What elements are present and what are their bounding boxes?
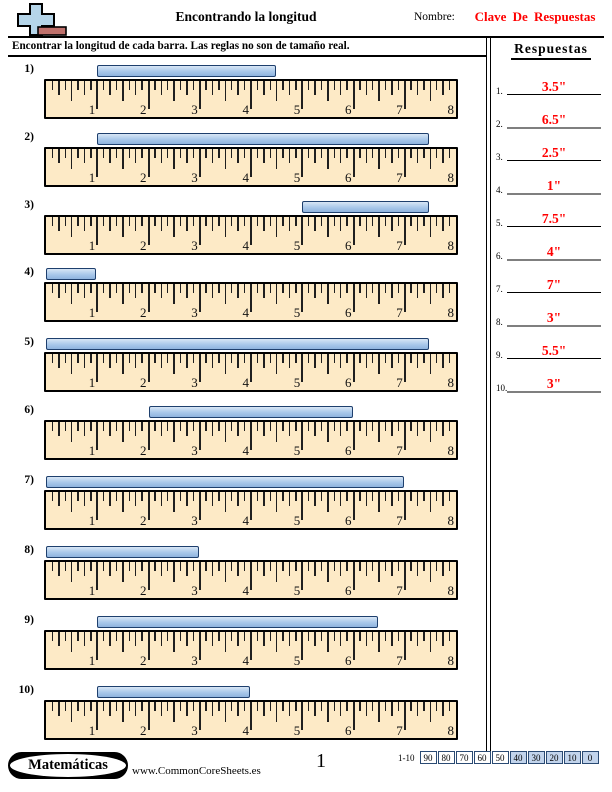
ruler-inch-number: 8	[439, 103, 454, 116]
answer-item: 10. 3"	[492, 375, 610, 390]
ruler-tick	[308, 149, 309, 158]
ruler-tick	[205, 81, 206, 90]
ruler-tick	[372, 217, 373, 226]
ruler-tick	[449, 284, 450, 293]
ruler-tick	[372, 149, 373, 158]
ruler-tick	[334, 562, 335, 571]
ruler-tick	[436, 354, 437, 363]
ruler-inch-number: 1	[80, 239, 95, 252]
ruler-inch-number: 2	[132, 444, 147, 457]
ruler-tick	[430, 354, 431, 374]
answer-number: 10.	[496, 383, 507, 393]
ruler-tick	[301, 632, 303, 660]
ruler-tick	[366, 217, 367, 231]
ruler-tick	[141, 149, 142, 158]
ruler-tick	[346, 422, 347, 431]
ruler-tick	[186, 702, 187, 716]
ruler-tick	[340, 492, 341, 506]
ruler-inch-number: 5	[285, 171, 300, 184]
ruler-tick	[180, 632, 181, 641]
measured-bar	[97, 133, 429, 145]
ruler-tick	[161, 217, 162, 231]
ruler-tick	[65, 562, 66, 571]
ruler-tick	[346, 492, 347, 501]
ruler-tick	[436, 284, 437, 293]
ruler-tick	[366, 81, 367, 95]
ruler-tick	[417, 217, 418, 231]
answer-blank-line: 7.5"	[507, 210, 601, 227]
answer-item: 3. 2.5"	[492, 144, 610, 159]
ruler-tick	[257, 492, 258, 501]
ruler-tick	[430, 702, 431, 722]
answer-item: 5. 7.5"	[492, 210, 610, 225]
ruler-tick	[84, 354, 85, 368]
ruler: 12345678	[44, 700, 458, 740]
ruler-tick	[270, 492, 271, 501]
ruler-tick	[282, 702, 283, 711]
ruler-tick	[359, 492, 360, 501]
ruler-tick	[237, 562, 238, 576]
ruler-tick	[327, 81, 328, 101]
ruler-tick	[205, 492, 206, 501]
ruler-tick	[321, 81, 322, 90]
ruler-tick	[141, 81, 142, 90]
ruler-inch-number: 4	[234, 724, 249, 737]
ruler-tick	[58, 217, 59, 231]
ruler-tick	[244, 149, 245, 158]
ruler-tick	[346, 217, 347, 226]
ruler-tick	[193, 149, 194, 158]
ruler-inch-number: 4	[234, 239, 249, 252]
answers-title: Respuestas	[492, 40, 610, 60]
ruler-tick	[295, 149, 296, 158]
ruler-tick	[116, 354, 117, 363]
ruler-tick	[404, 81, 406, 109]
ruler-tick	[135, 354, 136, 368]
ruler-tick	[385, 217, 386, 226]
ruler-inch-number: 1	[80, 444, 95, 457]
ruler-inch-number: 6	[337, 654, 352, 667]
ruler-tick	[372, 562, 373, 571]
answer-blank-line: 5.5"	[507, 342, 601, 359]
ruler-tick	[52, 422, 53, 431]
ruler: 12345678	[44, 282, 458, 322]
ruler-tick	[334, 149, 335, 158]
ruler-tick	[205, 702, 206, 711]
ruler-tick	[84, 149, 85, 163]
ruler-tick	[327, 284, 328, 304]
ruler-tick	[141, 284, 142, 293]
ruler-tick	[250, 632, 252, 660]
ruler-inch-number: 7	[388, 724, 403, 737]
ruler-tick	[135, 217, 136, 231]
ruler-tick	[193, 562, 194, 571]
ruler-tick	[346, 562, 347, 571]
ruler-tick	[430, 284, 431, 304]
ruler-tick	[321, 632, 322, 641]
ruler-tick	[423, 354, 424, 363]
answer-blank-line: 4"	[507, 243, 601, 261]
answer-number: 5.	[496, 218, 503, 228]
ruler-tick	[96, 422, 98, 450]
ruler-tick	[231, 217, 232, 226]
ruler-tick	[199, 632, 201, 660]
ruler-tick	[270, 149, 271, 158]
ruler-tick	[77, 632, 78, 641]
ruler-tick	[244, 217, 245, 226]
ruler-tick	[314, 702, 315, 716]
ruler-tick	[385, 702, 386, 711]
ruler-tick	[417, 492, 418, 506]
ruler-tick	[276, 354, 277, 374]
ruler-inch-number: 3	[183, 376, 198, 389]
ruler-tick	[116, 217, 117, 226]
ruler-tick	[58, 81, 59, 95]
ruler-tick	[423, 702, 424, 711]
ruler: 12345678	[44, 560, 458, 600]
ruler-tick	[148, 492, 150, 520]
ruler-tick	[301, 492, 303, 520]
answer-number: 3.	[496, 152, 503, 162]
ruler-tick	[353, 217, 355, 245]
ruler-tick	[52, 149, 53, 158]
ruler-tick	[442, 632, 443, 646]
ruler-tick	[237, 422, 238, 436]
ruler-tick	[225, 81, 226, 101]
ruler-tick	[276, 422, 277, 442]
ruler-tick	[366, 492, 367, 506]
ruler-tick	[353, 284, 355, 312]
ruler-tick	[154, 702, 155, 711]
measured-bar	[149, 406, 353, 418]
ruler-tick	[193, 492, 194, 501]
ruler-tick	[71, 492, 72, 512]
ruler-inch-number: 8	[439, 444, 454, 457]
ruler-tick	[244, 562, 245, 571]
ruler-tick	[346, 632, 347, 641]
ruler-tick	[250, 149, 252, 177]
answer-number: 4.	[496, 185, 503, 195]
ruler-tick	[270, 422, 271, 431]
ruler-tick	[103, 632, 104, 641]
ruler-tick	[449, 354, 450, 363]
ruler-tick	[372, 702, 373, 711]
ruler-tick	[398, 422, 399, 431]
ruler-tick	[417, 422, 418, 436]
measured-bar	[97, 616, 378, 628]
ruler-tick	[353, 492, 355, 520]
measured-bar	[46, 546, 199, 558]
ruler-tick	[77, 422, 78, 431]
ruler-inch-number: 2	[132, 724, 147, 737]
score-cells: 9080706050403020100	[420, 751, 600, 764]
ruler-tick	[423, 217, 424, 226]
ruler-tick	[103, 284, 104, 293]
ruler-tick	[193, 284, 194, 293]
answer-blank-line: 3"	[507, 309, 601, 327]
ruler-tick	[90, 284, 91, 293]
answer-item: 8. 3"	[492, 309, 610, 324]
ruler-tick	[308, 217, 309, 226]
ruler-tick	[430, 422, 431, 442]
ruler-tick	[282, 562, 283, 571]
ruler-tick	[398, 492, 399, 501]
ruler-tick	[109, 354, 110, 368]
ruler-tick	[353, 562, 355, 590]
problem-number: 3)	[0, 199, 34, 211]
ruler-tick	[410, 562, 411, 571]
ruler-tick	[141, 632, 142, 641]
ruler-inch-number: 3	[183, 724, 198, 737]
ruler-tick	[423, 149, 424, 158]
ruler-tick	[430, 632, 431, 652]
ruler-tick	[372, 632, 373, 641]
ruler-tick	[180, 149, 181, 158]
answer-value: 6.5"	[542, 113, 566, 127]
ruler-tick	[135, 422, 136, 436]
ruler-tick	[282, 284, 283, 293]
answers-title-text: Respuestas	[511, 41, 591, 60]
ruler-tick	[129, 217, 130, 226]
ruler-tick	[327, 354, 328, 374]
ruler-tick	[218, 702, 219, 711]
ruler-tick	[161, 81, 162, 95]
ruler-tick	[442, 354, 443, 368]
ruler-tick	[378, 702, 379, 722]
answer-value: 5.5"	[542, 344, 566, 358]
ruler-tick	[410, 702, 411, 711]
ruler-tick	[385, 562, 386, 571]
ruler-tick	[314, 422, 315, 436]
ruler-tick	[289, 492, 290, 506]
answer-blank-line: 3"	[507, 375, 601, 393]
ruler-tick	[129, 81, 130, 90]
ruler-tick	[237, 81, 238, 95]
answer-value: 4"	[547, 245, 561, 259]
ruler-tick	[436, 217, 437, 226]
ruler-tick	[186, 492, 187, 506]
ruler-tick	[167, 702, 168, 711]
ruler-inch-number: 3	[183, 654, 198, 667]
ruler-tick	[116, 284, 117, 293]
ruler-inch-number: 4	[234, 514, 249, 527]
ruler-tick	[391, 354, 392, 368]
answer-blank-line: 6.5"	[507, 111, 601, 129]
ruler-tick	[205, 217, 206, 226]
ruler-tick	[218, 492, 219, 501]
ruler-tick	[186, 149, 187, 163]
answer-value: 7.5"	[542, 212, 566, 226]
ruler-tick	[186, 422, 187, 436]
ruler-tick	[199, 81, 201, 109]
ruler-tick	[404, 217, 406, 245]
ruler-inch-number: 5	[285, 654, 300, 667]
ruler-tick	[96, 492, 98, 520]
answer-item: 1. 3.5"	[492, 78, 610, 93]
ruler-tick	[58, 422, 59, 436]
ruler-tick	[129, 284, 130, 293]
ruler-tick	[225, 149, 226, 169]
ruler-tick	[109, 492, 110, 506]
ruler-tick	[257, 81, 258, 90]
ruler-tick	[225, 422, 226, 442]
ruler-tick	[103, 81, 104, 90]
ruler-tick	[385, 492, 386, 501]
ruler-tick	[417, 562, 418, 576]
ruler-tick	[398, 284, 399, 293]
ruler-tick	[135, 149, 136, 163]
ruler-tick	[148, 354, 150, 382]
score-cell: 50	[492, 751, 509, 764]
ruler-tick	[116, 422, 117, 431]
ruler-tick	[289, 354, 290, 368]
ruler-tick	[96, 284, 98, 312]
ruler-tick	[282, 422, 283, 431]
ruler-tick	[289, 422, 290, 436]
ruler-tick	[295, 562, 296, 571]
ruler-tick	[186, 81, 187, 95]
ruler-tick	[129, 149, 130, 158]
ruler-tick	[231, 284, 232, 293]
ruler-tick	[186, 562, 187, 576]
ruler-tick	[180, 284, 181, 293]
ruler-tick	[250, 217, 252, 245]
ruler-tick	[263, 217, 264, 231]
ruler-tick	[84, 562, 85, 576]
ruler-tick	[180, 354, 181, 363]
ruler-tick	[378, 149, 379, 169]
ruler-tick	[263, 354, 264, 368]
ruler-tick	[398, 632, 399, 641]
ruler-tick	[231, 422, 232, 431]
ruler-inch-number: 1	[80, 514, 95, 527]
ruler-tick	[244, 702, 245, 711]
ruler-tick	[334, 492, 335, 501]
ruler-tick	[173, 284, 174, 304]
ruler-tick	[301, 354, 303, 382]
ruler-tick	[250, 284, 252, 312]
answer-key-label: Clave De Respuestas	[462, 9, 608, 25]
ruler-tick	[225, 702, 226, 722]
ruler-tick	[321, 284, 322, 293]
ruler-tick	[250, 702, 252, 730]
ruler-tick	[167, 492, 168, 501]
ruler-tick	[77, 492, 78, 501]
ruler-tick	[161, 354, 162, 368]
ruler-tick	[103, 562, 104, 571]
measured-bar	[46, 268, 96, 280]
ruler-tick	[410, 422, 411, 431]
ruler-tick	[308, 702, 309, 711]
ruler-inch-number: 1	[80, 654, 95, 667]
ruler-tick	[199, 284, 201, 312]
ruler-tick	[359, 422, 360, 431]
measured-bar	[46, 476, 404, 488]
ruler-tick	[391, 492, 392, 506]
ruler-tick	[301, 217, 303, 245]
ruler-inch-number: 2	[132, 376, 147, 389]
ruler-tick	[430, 562, 431, 582]
ruler-inch-number: 8	[439, 239, 454, 252]
ruler-inch-number: 3	[183, 444, 198, 457]
ruler-tick	[327, 492, 328, 512]
ruler-tick	[436, 632, 437, 641]
ruler-tick	[173, 632, 174, 652]
ruler-tick	[250, 422, 252, 450]
answer-value: 3"	[547, 377, 561, 391]
ruler-tick	[340, 81, 341, 95]
header-rule	[8, 36, 604, 38]
ruler-tick	[90, 81, 91, 90]
ruler-tick	[122, 149, 123, 169]
ruler-tick	[167, 354, 168, 363]
ruler-tick	[359, 284, 360, 293]
ruler-tick	[417, 149, 418, 163]
ruler-tick	[96, 354, 98, 382]
ruler-inch-number: 7	[388, 444, 403, 457]
ruler-inch-number: 2	[132, 171, 147, 184]
ruler-tick	[442, 217, 443, 231]
ruler-tick	[71, 284, 72, 304]
ruler-tick	[218, 149, 219, 158]
ruler-tick	[270, 284, 271, 293]
ruler-tick	[141, 354, 142, 363]
ruler-tick	[301, 422, 303, 450]
ruler-tick	[346, 702, 347, 711]
ruler-tick	[199, 149, 201, 177]
ruler-inch-number: 5	[285, 584, 300, 597]
ruler-tick	[410, 284, 411, 293]
ruler-tick	[58, 632, 59, 646]
ruler-inch-number: 1	[80, 376, 95, 389]
ruler-tick	[231, 562, 232, 571]
ruler-tick	[225, 562, 226, 582]
ruler-inch-number: 6	[337, 306, 352, 319]
ruler-tick	[263, 284, 264, 298]
score-cell: 0	[582, 751, 599, 764]
problem-number: 9)	[0, 614, 34, 626]
ruler-tick	[423, 81, 424, 90]
ruler-tick	[295, 422, 296, 431]
ruler-tick	[129, 562, 130, 571]
ruler-tick	[65, 284, 66, 293]
ruler-tick	[372, 81, 373, 90]
ruler-tick	[58, 492, 59, 506]
ruler-inch-number: 4	[234, 444, 249, 457]
ruler-tick	[327, 422, 328, 442]
ruler-tick	[295, 632, 296, 641]
ruler-tick	[237, 354, 238, 368]
score-cell: 70	[456, 751, 473, 764]
ruler-tick	[398, 354, 399, 363]
ruler-tick	[359, 562, 360, 571]
ruler-inch-number: 8	[439, 376, 454, 389]
ruler-tick	[71, 81, 72, 101]
ruler-tick	[327, 562, 328, 582]
ruler-tick	[129, 702, 130, 711]
problem-number: 1)	[0, 63, 34, 75]
ruler-tick	[398, 217, 399, 226]
name-label: Nombre:	[414, 11, 455, 23]
ruler-inch-number: 5	[285, 444, 300, 457]
ruler-tick	[173, 422, 174, 442]
ruler-tick	[378, 422, 379, 442]
ruler-tick	[212, 422, 213, 436]
ruler-tick	[173, 562, 174, 582]
ruler-tick	[90, 492, 91, 501]
ruler-tick	[410, 81, 411, 90]
ruler-tick	[122, 81, 123, 101]
